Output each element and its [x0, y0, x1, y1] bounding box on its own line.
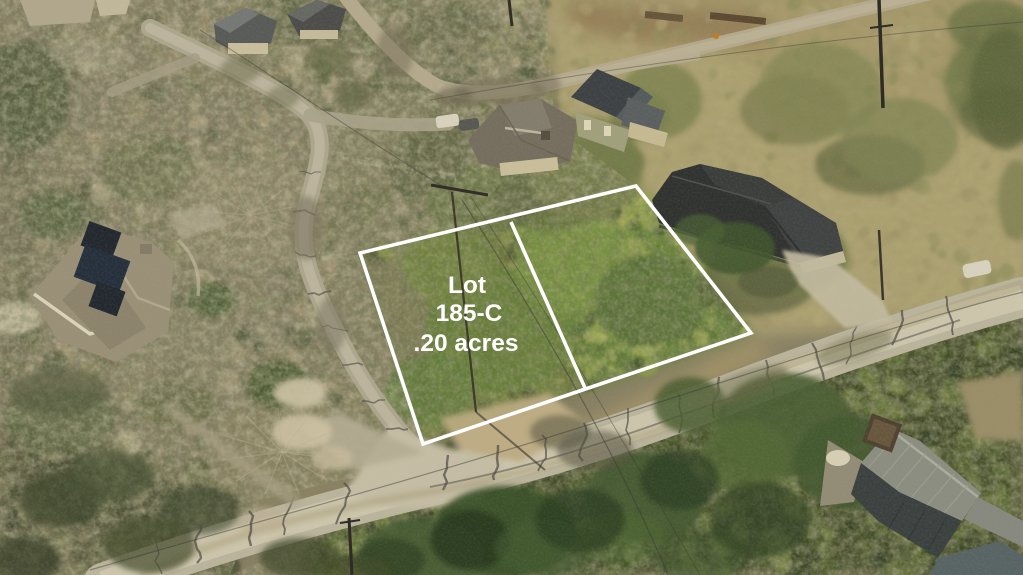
svg-text:185-C: 185-C [436, 300, 503, 327]
svg-text:.20 acres: .20 acres [414, 330, 519, 357]
svg-text:Lot: Lot [448, 272, 486, 299]
